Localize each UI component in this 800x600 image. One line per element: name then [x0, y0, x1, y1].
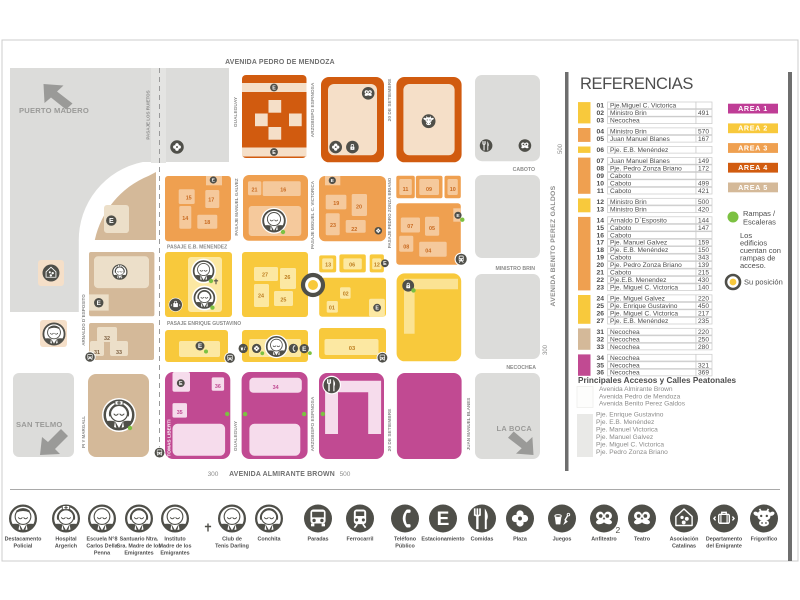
svg-text:21: 21: [596, 270, 604, 277]
svg-text:PASAJE E.B. MENENDEZ: PASAJE E.B. MENENDEZ: [167, 245, 227, 251]
svg-text:Necochea: Necochea: [610, 344, 640, 351]
svg-text:250: 250: [698, 336, 709, 343]
svg-text:06: 06: [349, 262, 355, 268]
svg-text:19: 19: [596, 255, 604, 262]
svg-text:Frigorífico: Frigorífico: [751, 537, 778, 543]
svg-text:215: 215: [698, 270, 709, 277]
svg-text:Caboto: Caboto: [610, 232, 632, 239]
svg-text:499: 499: [698, 180, 709, 187]
svg-text:PI Y MARGALL: PI Y MARGALL: [81, 416, 86, 448]
svg-text:24: 24: [596, 296, 604, 303]
svg-text:Necochea: Necochea: [610, 329, 640, 336]
svg-text:Argerich: Argerich: [55, 543, 77, 549]
svg-text:14: 14: [596, 217, 604, 224]
svg-text:Principales Accesos y Calles P: Principales Accesos y Calles Peatonales: [578, 376, 737, 385]
svg-text:PASAJE ENRIQUE GUSTAVINO: PASAJE ENRIQUE GUSTAVINO: [167, 321, 241, 327]
svg-text:22: 22: [596, 277, 604, 284]
svg-text:300: 300: [208, 471, 219, 478]
svg-text:36: 36: [215, 384, 221, 390]
svg-text:Necochea: Necochea: [610, 117, 640, 124]
svg-text:32: 32: [104, 336, 110, 342]
svg-text:04: 04: [425, 249, 431, 255]
svg-text:26: 26: [284, 275, 290, 281]
svg-text:AVENIDA BENITO PEREZ GALDOS: AVENIDA BENITO PEREZ GALDOS: [550, 185, 557, 306]
svg-text:27: 27: [596, 318, 604, 325]
svg-text:Pje. Miguel C. Victorica: Pje. Miguel C. Victorica: [610, 284, 678, 291]
svg-text:26: 26: [596, 310, 604, 317]
svg-text:Juan Manuel Blanes: Juan Manuel Blanes: [610, 158, 670, 165]
svg-text:17: 17: [208, 197, 214, 203]
svg-text:570: 570: [698, 129, 709, 136]
svg-text:GUALEGUAY: GUALEGUAY: [233, 96, 239, 127]
svg-text:Pje. Pedro Zonza Briano: Pje. Pedro Zonza Briano: [610, 262, 682, 269]
svg-text:Sra. Madre de los: Sra. Madre de los: [117, 543, 162, 549]
svg-text:05: 05: [429, 226, 435, 232]
svg-text:421: 421: [698, 188, 709, 195]
svg-text:Instituto: Instituto: [164, 537, 186, 543]
svg-text:Necochea: Necochea: [610, 362, 640, 369]
svg-text:Asociación: Asociación: [670, 537, 699, 543]
svg-text:04: 04: [596, 129, 604, 136]
svg-text:Pje. Miguel C. Victorica: Pje. Miguel C. Victorica: [596, 441, 664, 448]
svg-text:32: 32: [596, 336, 604, 343]
svg-text:217: 217: [698, 310, 709, 317]
svg-text:Ministro Brin: Ministro Brin: [610, 110, 647, 117]
svg-text:17: 17: [596, 240, 604, 247]
svg-text:35: 35: [596, 362, 604, 369]
svg-text:07: 07: [407, 224, 413, 230]
svg-text:Avenida Pedro de Mendoza: Avenida Pedro de Mendoza: [599, 393, 681, 400]
svg-text:Penna: Penna: [94, 550, 111, 556]
svg-text:AREA 3: AREA 3: [738, 143, 768, 152]
svg-text:147: 147: [698, 225, 709, 232]
svg-text:REFERENCIAS: REFERENCIAS: [580, 75, 693, 93]
svg-text:PASAJE PEDRO ZONZA BRIANO: PASAJE PEDRO ZONZA BRIANO: [387, 177, 392, 248]
svg-text:34: 34: [596, 355, 604, 362]
svg-text:Juegos: Juegos: [553, 537, 572, 543]
svg-text:420: 420: [698, 206, 709, 213]
svg-text:PASAJE LOS RUIETOS: PASAJE LOS RUIETOS: [146, 90, 151, 139]
svg-text:159: 159: [698, 240, 709, 247]
svg-text:Teatro: Teatro: [634, 537, 651, 543]
svg-text:Avenida Benito Perez Galdos: Avenida Benito Perez Galdos: [599, 401, 686, 408]
svg-text:491: 491: [698, 110, 709, 117]
svg-text:AREA 4: AREA 4: [738, 163, 768, 172]
svg-text:16: 16: [596, 232, 604, 239]
svg-text:450: 450: [698, 303, 709, 310]
svg-text:Pje. Enrique Gustavino: Pje. Enrique Gustavino: [596, 411, 664, 418]
svg-text:14: 14: [182, 216, 188, 222]
svg-text:MINISTRO BRIN: MINISTRO BRIN: [496, 266, 536, 272]
svg-text:Paradas: Paradas: [308, 537, 329, 543]
svg-text:Carlos Della: Carlos Della: [86, 543, 118, 549]
svg-text:Pje. E.B. Menéndez: Pje. E.B. Menéndez: [610, 247, 668, 254]
svg-text:13: 13: [596, 206, 604, 213]
svg-text:Santuario Ntra.: Santuario Ntra.: [120, 537, 159, 543]
svg-text:23: 23: [330, 223, 336, 229]
svg-text:Pje.E.B. Menendez: Pje.E.B. Menendez: [610, 277, 666, 284]
svg-text:NECOCHEA: NECOCHEA: [506, 365, 536, 371]
svg-text:AVENIDA PEDRO DE MENDOZA: AVENIDA PEDRO DE MENDOZA: [225, 59, 335, 66]
svg-text:18: 18: [204, 220, 210, 226]
svg-text:Pje. Manuel Galvez: Pje. Manuel Galvez: [596, 434, 653, 441]
svg-text:20: 20: [596, 262, 604, 269]
svg-text:ARNALDO D`ESPOSITO: ARNALDO D`ESPOSITO: [81, 294, 86, 346]
svg-text:Ferrocarril: Ferrocarril: [347, 537, 374, 543]
svg-text:Caboto: Caboto: [610, 270, 632, 277]
svg-text:500: 500: [558, 143, 564, 154]
svg-text:Avenida Almirante Brown: Avenida Almirante Brown: [599, 386, 673, 393]
svg-text:16: 16: [280, 187, 286, 193]
svg-text:12: 12: [596, 199, 604, 206]
svg-text:AVENIDA ALMIRANTE BROWN: AVENIDA ALMIRANTE BROWN: [229, 471, 335, 478]
svg-text:15: 15: [596, 225, 604, 232]
svg-text:Catalinas: Catalinas: [672, 543, 696, 549]
svg-text:del Emigrante: del Emigrante: [706, 543, 742, 549]
svg-text:PASAJE MANUEL GALVEZ: PASAJE MANUEL GALVEZ: [234, 178, 239, 236]
svg-text:321: 321: [698, 362, 709, 369]
svg-text:33: 33: [596, 344, 604, 351]
svg-text:220: 220: [698, 329, 709, 336]
svg-text:144: 144: [698, 217, 709, 224]
svg-text:167: 167: [698, 136, 709, 143]
svg-text:18: 18: [596, 247, 604, 254]
svg-text:PASAJE MIGUEL C. VICTORICA: PASAJE MIGUEL C. VICTORICA: [310, 180, 315, 249]
svg-text:Ministro Brin: Ministro Brin: [610, 129, 647, 136]
svg-text:Pje. Miguel C. Victorica: Pje. Miguel C. Victorica: [610, 310, 678, 317]
svg-text:Pje. E.B. Menéndez: Pje. E.B. Menéndez: [610, 318, 668, 325]
svg-text:09: 09: [596, 173, 604, 180]
svg-text:35: 35: [177, 410, 183, 416]
svg-text:08: 08: [403, 244, 409, 250]
svg-text:Emigrantes: Emigrantes: [160, 550, 189, 556]
svg-text:12: 12: [374, 262, 380, 268]
svg-text:Anfiteatro: Anfiteatro: [591, 537, 617, 543]
svg-text:15: 15: [186, 195, 192, 201]
svg-text:19: 19: [333, 201, 339, 207]
svg-text:Escaleras: Escaleras: [743, 218, 776, 227]
svg-text:Pje. E.B. Menéndez: Pje. E.B. Menéndez: [596, 419, 654, 426]
svg-text:Caboto: Caboto: [610, 255, 632, 262]
svg-text:27: 27: [262, 272, 268, 278]
svg-text:01: 01: [596, 103, 604, 110]
svg-text:Pje.Miguel C. Victorica: Pje.Miguel C. Victorica: [610, 103, 677, 110]
svg-text:20 DE SETIEMBRE: 20 DE SETIEMBRE: [387, 408, 393, 451]
svg-text:02: 02: [343, 292, 349, 298]
svg-text:CABOTO: CABOTO: [513, 167, 535, 173]
svg-text:03: 03: [596, 117, 604, 124]
svg-text:Ministro Brin: Ministro Brin: [610, 206, 647, 213]
svg-text:33: 33: [116, 350, 122, 356]
svg-text:24: 24: [258, 293, 264, 299]
svg-text:Pje. Pedro Zonza Briano: Pje. Pedro Zonza Briano: [610, 166, 682, 173]
svg-text:23: 23: [596, 284, 604, 291]
svg-text:10: 10: [450, 187, 456, 193]
svg-text:Necochea: Necochea: [610, 336, 640, 343]
svg-text:Destacamento: Destacamento: [5, 537, 43, 543]
svg-text:Madre de los: Madre de los: [159, 543, 192, 549]
svg-text:ARZOBISPO ESPINOSA: ARZOBISPO ESPINOSA: [310, 396, 316, 451]
svg-text:280: 280: [698, 344, 709, 351]
svg-text:10: 10: [596, 180, 604, 187]
svg-text:34: 34: [273, 385, 279, 391]
svg-text:Caboto: Caboto: [610, 225, 632, 232]
svg-text:20 DE SETIEMBRE: 20 DE SETIEMBRE: [387, 78, 393, 121]
svg-text:Club de: Club de: [222, 537, 242, 543]
svg-text:Escuela N°8: Escuela N°8: [87, 537, 118, 543]
svg-text:Comidas: Comidas: [471, 537, 494, 543]
svg-text:25: 25: [596, 303, 604, 310]
svg-text:Pje. Pedro Zonza Briano: Pje. Pedro Zonza Briano: [596, 449, 668, 456]
svg-text:Público: Público: [395, 543, 415, 549]
svg-text:500: 500: [698, 199, 709, 206]
svg-text:Caboto: Caboto: [610, 173, 632, 180]
svg-text:acceso.: acceso.: [740, 261, 766, 270]
svg-text:21: 21: [252, 187, 258, 193]
svg-text:343: 343: [698, 255, 709, 262]
svg-text:LA BOCA: LA BOCA: [497, 424, 533, 433]
svg-text:ARZOBISPO ESPINOSA: ARZOBISPO ESPINOSA: [310, 82, 316, 137]
svg-text:PUERTO MADERO: PUERTO MADERO: [19, 106, 89, 115]
svg-text:Juan Manuel Blanes: Juan Manuel Blanes: [610, 136, 670, 143]
svg-text:140: 140: [698, 284, 709, 291]
svg-text:20: 20: [356, 204, 362, 210]
svg-text:Pje. Enrique Gustavino: Pje. Enrique Gustavino: [610, 303, 678, 310]
svg-text:Ministro Brin: Ministro Brin: [610, 199, 647, 206]
svg-text:149: 149: [698, 158, 709, 165]
svg-text:300: 300: [543, 344, 549, 355]
svg-text:07: 07: [596, 158, 604, 165]
svg-text:Teléfono: Teléfono: [394, 537, 417, 543]
svg-text:139: 139: [698, 262, 709, 269]
svg-text:Policial: Policial: [14, 543, 33, 549]
svg-text:235: 235: [698, 318, 709, 325]
svg-text:220: 220: [698, 296, 709, 303]
svg-text:150: 150: [698, 247, 709, 254]
svg-text:Caboto: Caboto: [610, 180, 632, 187]
svg-text:Su posición: Su posición: [744, 278, 783, 287]
svg-text:TOMAS LIBERTI: TOMAS LIBERTI: [167, 419, 173, 457]
svg-text:09: 09: [426, 187, 432, 193]
svg-text:13: 13: [325, 262, 331, 268]
svg-text:22: 22: [351, 227, 357, 233]
svg-text:AREA 1: AREA 1: [738, 104, 768, 113]
svg-text:Pje. E.B. Menéndez: Pje. E.B. Menéndez: [610, 147, 668, 154]
svg-text:430: 430: [698, 277, 709, 284]
svg-text:Estacionamiento: Estacionamiento: [421, 537, 465, 543]
svg-text:JUAN MANUEL BLANES: JUAN MANUEL BLANES: [466, 398, 471, 450]
svg-text:06: 06: [596, 147, 604, 154]
svg-text:AREA 2: AREA 2: [738, 124, 768, 133]
svg-text:GUALEGUAY: GUALEGUAY: [233, 420, 239, 451]
svg-text:AREA 5: AREA 5: [738, 183, 768, 192]
svg-text:31: 31: [596, 329, 604, 336]
svg-text:Pje. Manuel Victorica: Pje. Manuel Victorica: [596, 426, 658, 433]
svg-text:SAN TELMO: SAN TELMO: [16, 420, 63, 429]
svg-text:08: 08: [596, 166, 604, 173]
svg-text:Caboto: Caboto: [610, 188, 632, 195]
svg-text:500: 500: [340, 471, 351, 478]
svg-text:Pje. Miguel Galvez: Pje. Miguel Galvez: [610, 296, 665, 303]
svg-text:02: 02: [596, 110, 604, 117]
svg-text:Hospital: Hospital: [55, 537, 77, 543]
svg-text:11: 11: [597, 188, 604, 195]
svg-text:03: 03: [349, 346, 356, 352]
svg-text:Arnaldo D`Esposito: Arnaldo D`Esposito: [610, 217, 667, 224]
svg-text:Departamento: Departamento: [706, 537, 743, 543]
svg-text:Tenis Darling: Tenis Darling: [215, 543, 249, 549]
svg-text:Pje. Manuel Galvez: Pje. Manuel Galvez: [610, 240, 667, 247]
svg-text:172: 172: [698, 166, 709, 173]
svg-text:2: 2: [616, 525, 621, 535]
svg-text:Emigrantes: Emigrantes: [124, 550, 153, 556]
svg-text:25: 25: [280, 297, 286, 303]
svg-text:01: 01: [329, 306, 335, 312]
svg-text:05: 05: [596, 136, 604, 143]
svg-text:11: 11: [403, 187, 409, 193]
svg-text:Conchita: Conchita: [257, 537, 281, 543]
svg-text:Plaza: Plaza: [513, 537, 528, 543]
svg-text:Necochea: Necochea: [610, 355, 640, 362]
